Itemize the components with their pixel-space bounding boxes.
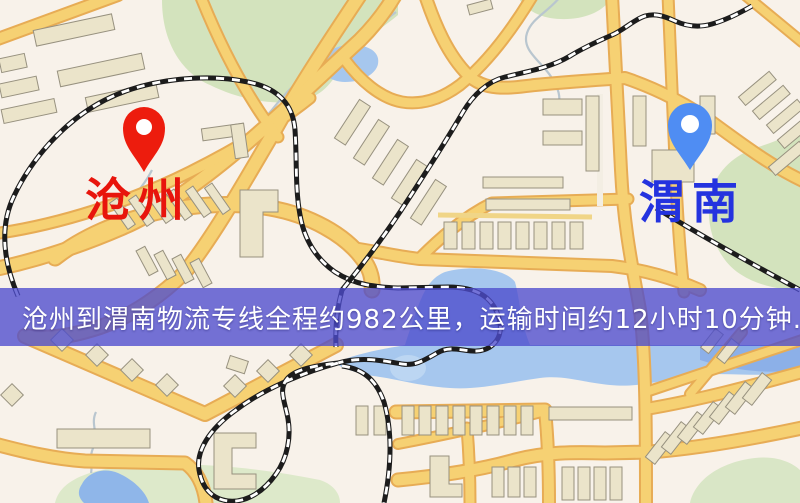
route-info-text: 沧州到渭南物流专线全程约982公里，运输时间约12小时10分钟. <box>22 299 800 336</box>
map-canvas[interactable]: 沧州 渭南 <box>0 0 800 503</box>
route-info-banner: 沧州到渭南物流专线全程约982公里，运输时间约12小时10分钟. <box>0 288 800 346</box>
map-view[interactable]: 沧州 渭南 沧州到渭南物流专线全程约982公里，运输时间约12小时10分钟. <box>0 0 800 503</box>
destination-city-label: 渭南 <box>639 175 745 229</box>
origin-city-label: 沧州 <box>85 173 191 227</box>
